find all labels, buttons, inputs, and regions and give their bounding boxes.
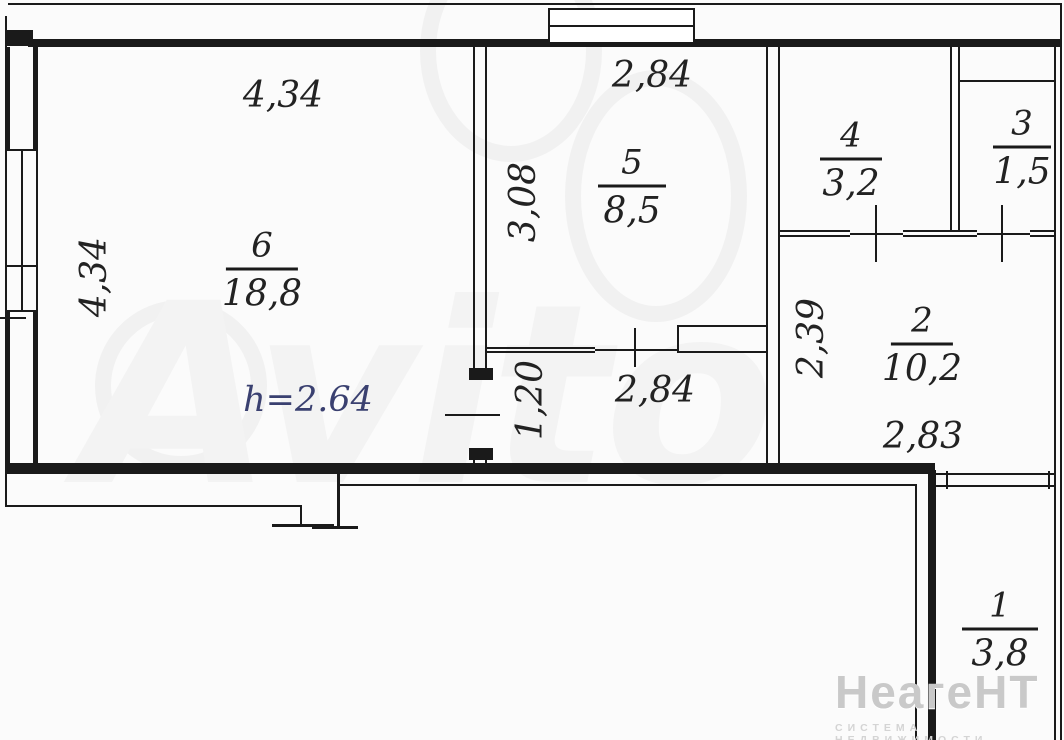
agency-watermark-title: НеагеНТ <box>835 665 1064 719</box>
floor-plan: Avito <box>0 0 1064 740</box>
agency-watermark: НеагеНТ СИСТЕМА НЕДВИЖИМОСТИ <box>0 0 1064 740</box>
agency-watermark-subtitle: СИСТЕМА НЕДВИЖИМОСТИ <box>835 722 1064 740</box>
